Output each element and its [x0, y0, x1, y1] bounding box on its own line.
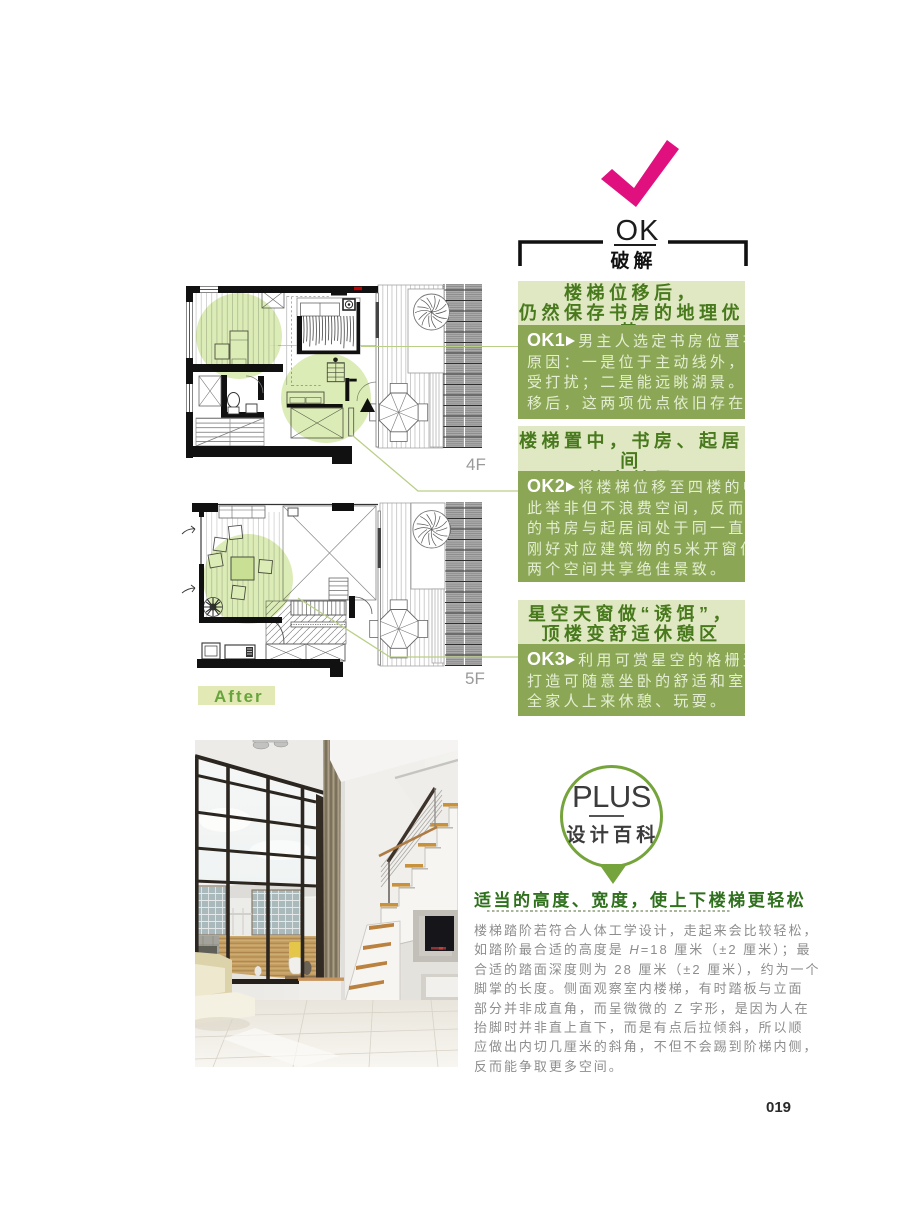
svg-text:5F: 5F	[465, 669, 485, 688]
